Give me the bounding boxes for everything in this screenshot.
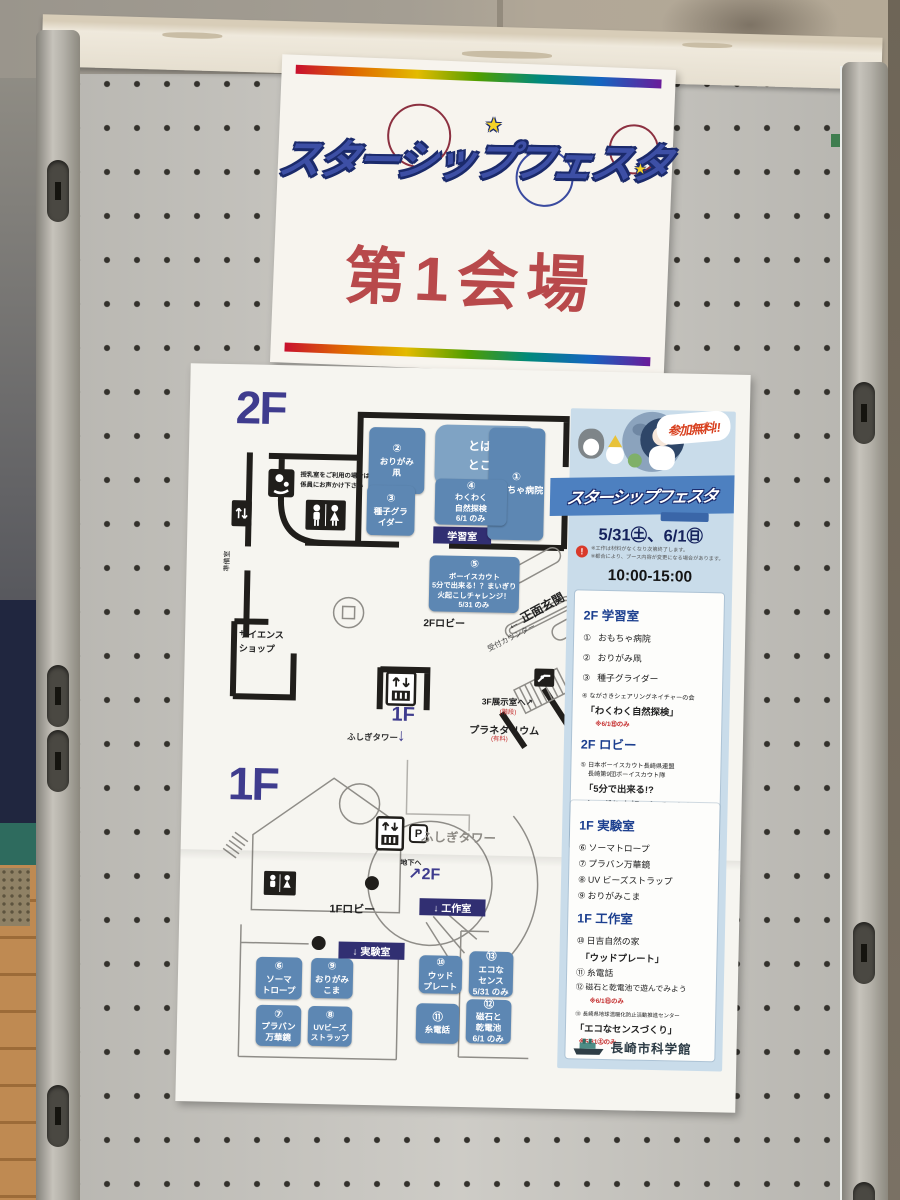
booth-4-nature-quest: ④ わくわく 自然探検 6/1 のみ — [434, 478, 507, 525]
festa-logo: スターシップフェスタ ★ ★ — [277, 120, 673, 197]
list-item: ⑬長崎県地球温暖化防止活動推進センター — [575, 1009, 706, 1020]
workshop-label: ↓ 工作室 — [419, 898, 485, 916]
navy-curtain — [0, 600, 36, 835]
science-shop-label: サイエンス ショップ — [239, 628, 284, 656]
list-item: ⑧UV ビーズストラップ — [578, 872, 709, 888]
board-frame-left — [36, 30, 80, 1200]
mid-floor-1f-label: 1F — [391, 703, 415, 726]
booth-10-wood-plate: ⑩ ウッド プレート — [419, 955, 463, 994]
festa-logo-text: スターシップフェスタ — [275, 125, 675, 191]
list-item: ⑤ 日本ボーイスカウト長崎県連盟長崎第9団ボーイスカウト隊 — [580, 759, 711, 780]
list-item: ⑪糸電話 — [576, 965, 707, 981]
learning-room-label: 学習室 — [433, 526, 491, 544]
map-poster: 2F 1F 授乳室をご利用の場合は 係員にお声かけ下さい 準備室 サイエンス シ… — [175, 363, 750, 1113]
list-item-sub: 「5分で出来る!? — [584, 781, 711, 798]
booth-5-boy-scouts: ⑤ ボーイスカウト 5分で出来る！？まいぎり 火起こしチャレンジ！ 5/31 の… — [429, 555, 520, 613]
list-item: ⑩日吉自然の家 — [577, 933, 708, 949]
booth-9-origami-top: ⑨ おりがみ こま — [311, 958, 354, 999]
list-item: ⑨おりがみこま — [578, 888, 709, 904]
toilet-icon-1f — [264, 871, 296, 896]
round-character — [606, 445, 624, 464]
list-item: ⑫磁石と乾電池で遊んでみよう — [576, 981, 707, 995]
event-info-panel: 参加無料!! スターシップフェスタ 5/31㊏、6/1㊐ ! ※工作は材料がなく… — [557, 408, 736, 1071]
nursing-room-icon — [268, 469, 295, 498]
star-icon: ★ — [634, 160, 647, 177]
elevator-icon-1f — [377, 817, 404, 850]
logo-sub-badge — [661, 512, 709, 522]
title-poster: スターシップフェスタ ★ ★ 第1会場 — [270, 54, 676, 378]
date-note: ※6/1㊐のみ — [595, 719, 712, 730]
list-item: ③種子グライダー — [582, 670, 713, 686]
list-item: ⑥ソーマトロープ — [579, 840, 710, 856]
fushigi-tower-label-2: ふしぎタワー — [421, 826, 496, 847]
venue-title: 第1会場 — [272, 222, 669, 328]
warning-icon: ! — [576, 545, 588, 557]
booth-7-kaleidoscope: ⑦ プラバン 万華鏡 — [256, 1005, 302, 1047]
event-dates: 5/31㊏、6/1㊐ — [568, 520, 733, 547]
list-card-1f: 1F 実験室 ⑥ソーマトロープ ⑦プラバン万華鏡 ⑧UV ビーズストラップ ⑨お… — [565, 800, 719, 1061]
background-right — [888, 0, 900, 1200]
list-item: ⑦プラバン万華鏡 — [578, 856, 709, 872]
to-2f-label: ↗2F — [408, 864, 440, 885]
event-notes: ! ※工作は材料がなくなり次第終了します。 ※都合により、ブース内容が変更になる… — [576, 545, 728, 564]
booth-12-magnet-battery: ⑫ 磁石と 乾電池 6/1 のみ — [466, 999, 512, 1044]
free-admission-bubble: 参加無料!! — [655, 410, 731, 446]
date-note: ※6/1㊐のみ — [589, 996, 706, 1007]
floor-1f-title: 1F — [227, 756, 278, 811]
star-icon: ★ — [484, 112, 503, 138]
down-arrow: ↓ — [397, 726, 406, 746]
booth-6-thaumatrope: ⑥ ソーマ トロープ — [255, 957, 302, 1000]
section-heading: 2F 学習室 — [583, 605, 714, 627]
booth-11-string-phone: ⑪ 糸電話 — [416, 1003, 460, 1044]
escalator-icon — [534, 668, 554, 686]
section-heading: 1F 実験室 — [579, 814, 710, 836]
board-frame-right — [842, 62, 888, 1200]
rainbow-bar-bottom — [284, 343, 650, 367]
elevator-icon-2f-left — [231, 500, 252, 526]
ship-icon — [571, 1037, 605, 1056]
section-heading: 1F 工作室 — [577, 907, 708, 929]
section-heading: 2F ロビー — [581, 733, 712, 755]
perforated-mat — [0, 868, 30, 926]
nursing-note: 授乳室をご利用の場合は 係員にお声かけ下さい — [300, 471, 370, 493]
elevator-icon-mid — [387, 672, 416, 705]
science-museum-logo: 長崎市科学館 — [571, 1036, 691, 1058]
teal-object — [0, 823, 36, 865]
lab-label: ↓ 実験室 — [338, 941, 404, 959]
event-time: 10:00-15:00 — [567, 566, 732, 587]
list-item: ④ながさきシェアリングネイチャーの会 — [582, 690, 713, 702]
list-item-sub: 「ウッドプレート」 — [580, 950, 707, 967]
floor-2f-title: 2F — [235, 380, 286, 435]
list-item-sub: 「エコなセンスづくり」 — [575, 1020, 706, 1037]
background-left — [0, 78, 36, 623]
list-item: ①おもちゃ病院 — [583, 630, 714, 646]
party-hat — [608, 435, 622, 447]
list-item: ②おりがみ凧 — [583, 650, 714, 666]
photo-scene: スターシップフェスタ ★ ★ 第1会場 — [0, 0, 900, 1200]
to-3f-note: (階段) — [499, 707, 516, 716]
sidebar-festa-logo: スターシップフェスタ — [550, 475, 735, 516]
planetarium-note: (有料) — [491, 734, 508, 743]
booth-13-eco-fan: ⑬ エコな センス 5/31 のみ — [469, 951, 514, 997]
toilet-icon-2f — [305, 500, 346, 531]
prep-room-label: 準備室 — [222, 550, 232, 571]
booth-3-seed-glider: ③ 種子グラ イダー — [366, 485, 415, 536]
fushigi-tower-label: ふしぎタワー — [347, 731, 398, 744]
lobby-1f-label: 1Fロビー — [329, 900, 375, 917]
lobby-2f-label: 2Fロビー — [423, 614, 465, 630]
booth-2-origami-kite: ② おりがみ 凧 — [368, 427, 425, 494]
rainbow-bar-top — [296, 65, 662, 89]
list-item-sub: 「わくわく自然探検」 — [585, 703, 712, 720]
booth-8-uv-beads: ⑧ UVビーズ ストラップ — [308, 1006, 353, 1047]
